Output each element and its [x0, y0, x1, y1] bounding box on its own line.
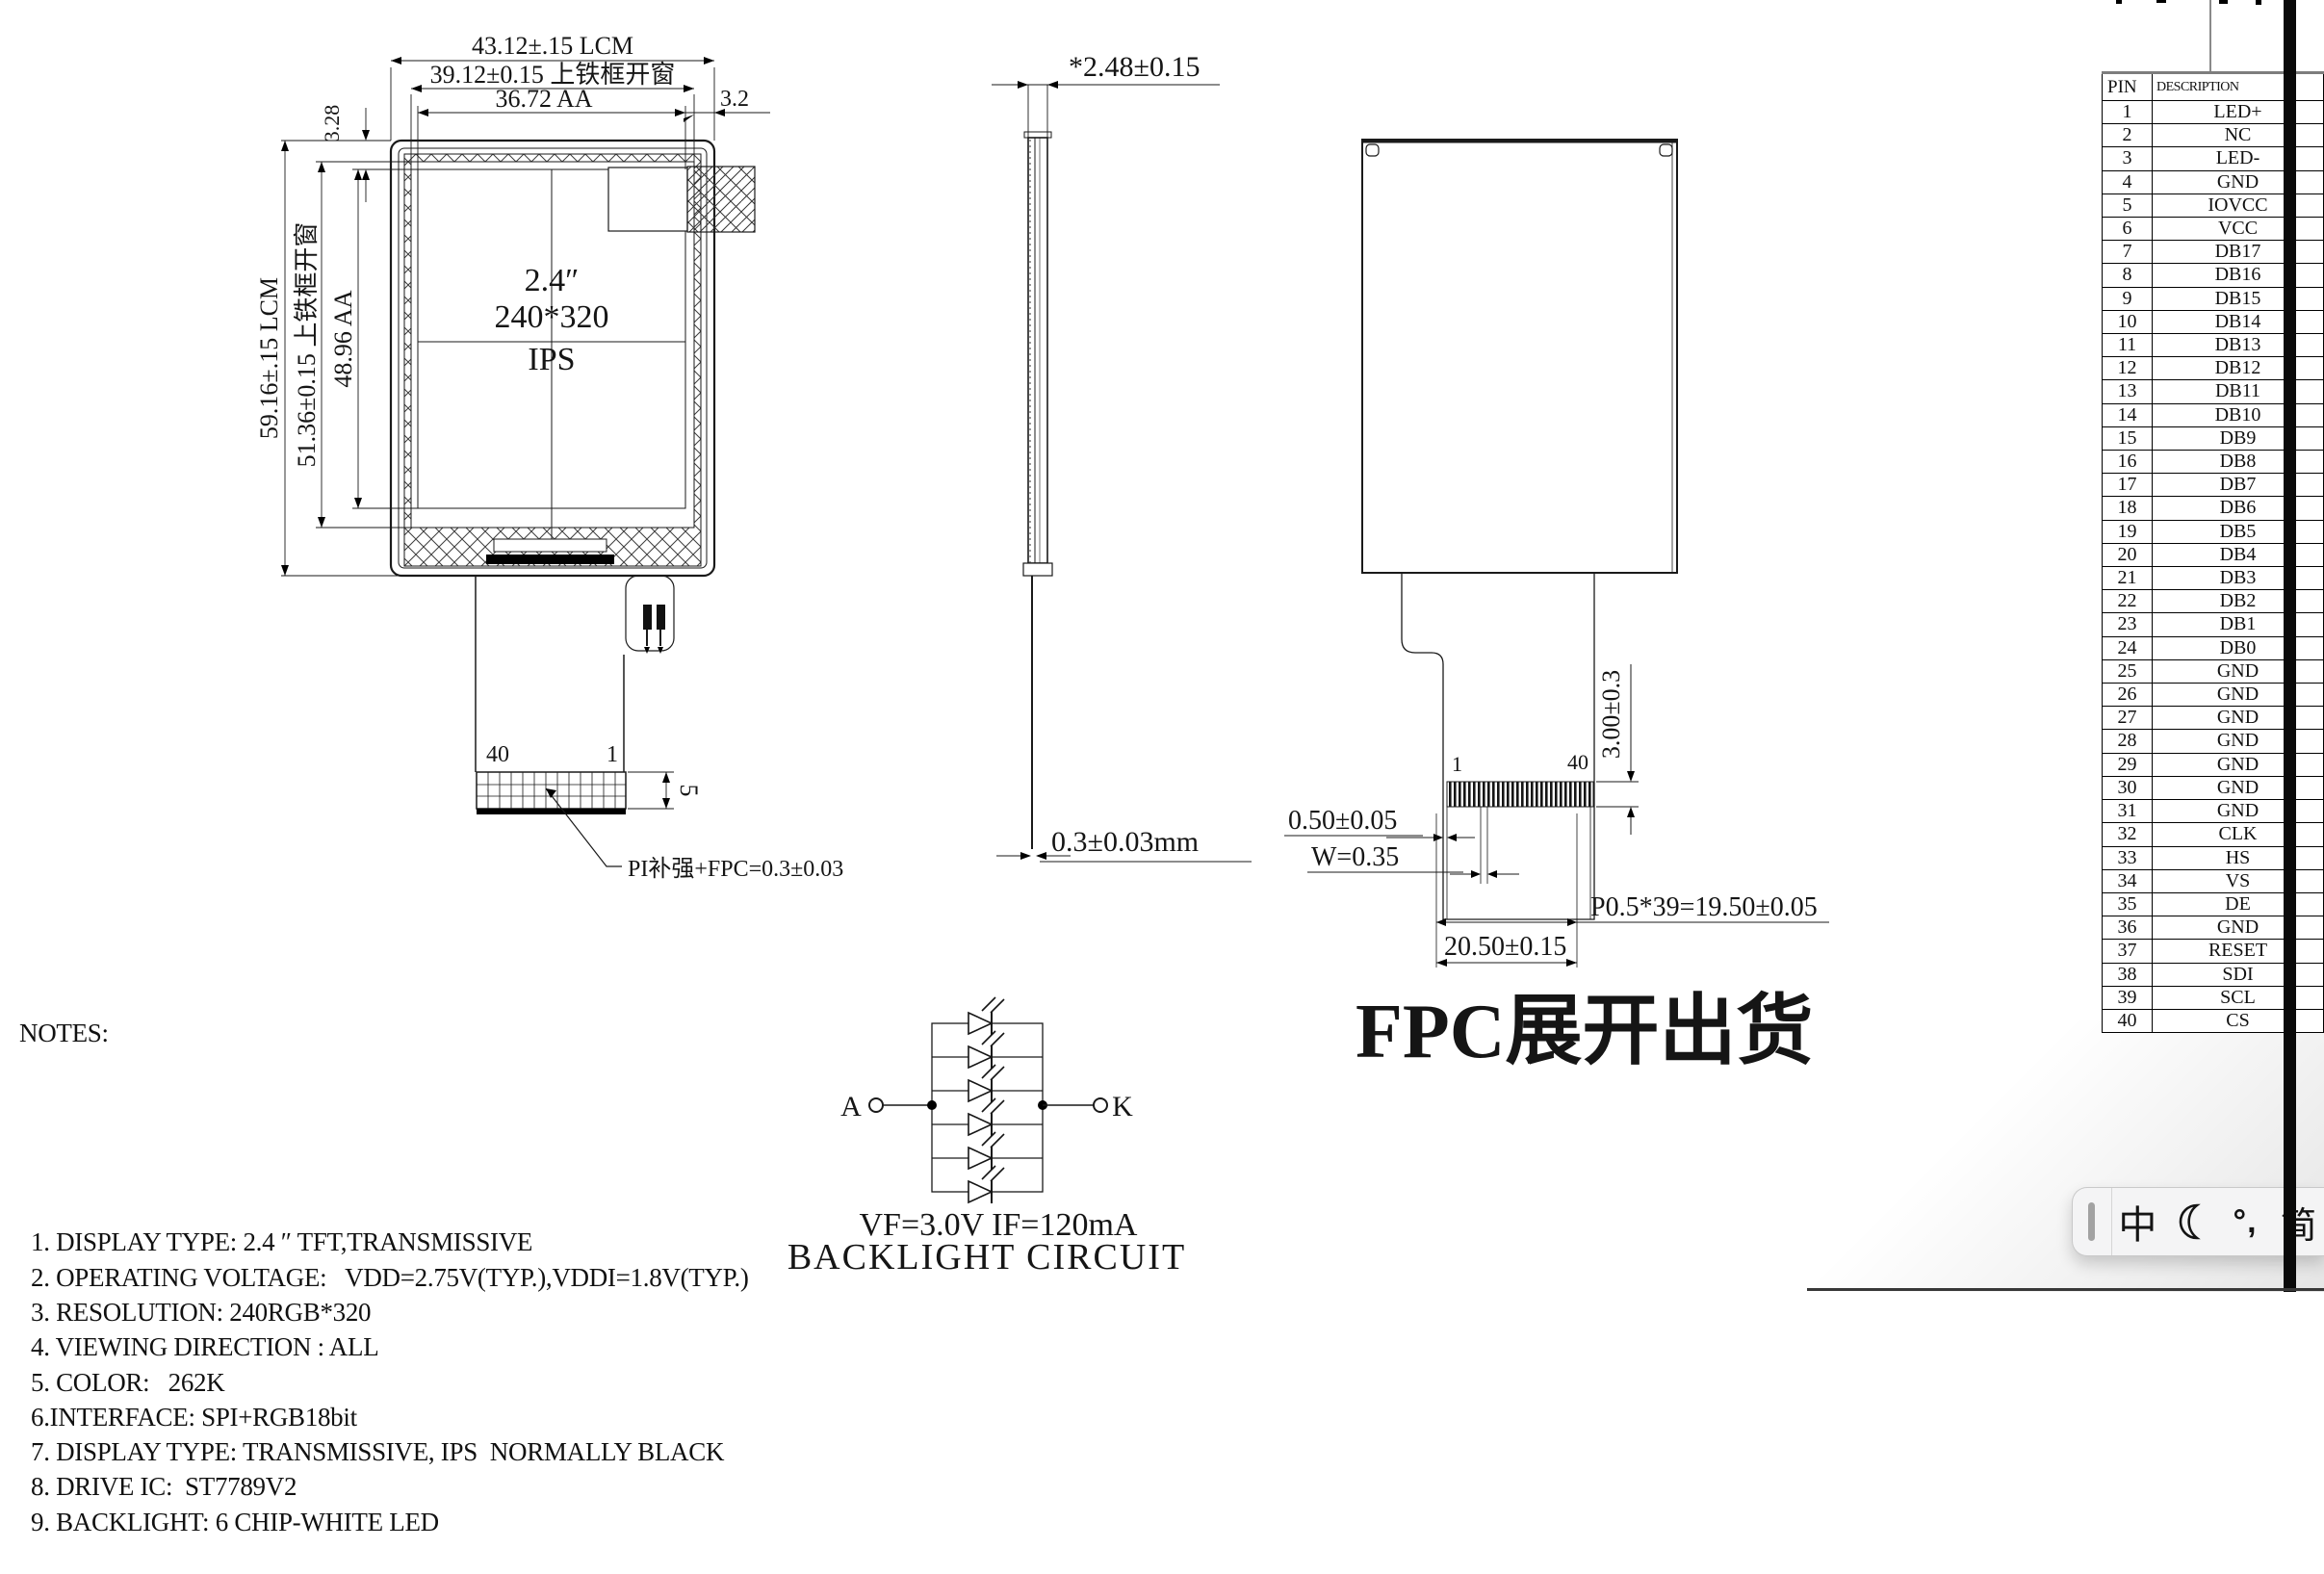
pin-description: HS [2153, 846, 2324, 869]
pin-number: 18 [2103, 497, 2153, 520]
pin-number: 10 [2103, 310, 2153, 333]
pin-description: RESET [2153, 940, 2324, 963]
pin-number: 17 [2103, 474, 2153, 497]
dim-pad-pitch: P0.5*39=19.50±0.05 [1590, 892, 1818, 922]
top-edge-tick [2156, 0, 2166, 3]
backlight-caption: BACKLIGHT CIRCUIT [788, 1237, 1186, 1277]
corner-tab-right [1660, 144, 1672, 156]
pin-number: 25 [2103, 659, 2153, 683]
note-line: 5. COLOR: 262K [19, 1365, 828, 1400]
pin-number: 24 [2103, 636, 2153, 659]
pin-number: 11 [2103, 334, 2153, 357]
dim-pad-width: W=0.35 [1311, 842, 1399, 872]
pin-column-header: PIN [2103, 73, 2153, 101]
backlight-circuit [869, 997, 1107, 1203]
window-edge-bar [2284, 0, 2296, 1292]
pin-description: DB2 [2153, 590, 2324, 613]
note-line: 3. RESOLUTION: 240RGB*320 [19, 1295, 828, 1329]
pin-number: 16 [2103, 451, 2153, 474]
note-line: 7. DISPLAY TYPE: TRANSMISSIVE, IPS NORMA… [19, 1434, 828, 1469]
panel-resolution-label: 240*320 [495, 299, 609, 335]
pin-description: DB14 [2153, 310, 2324, 333]
pin-description: DB13 [2153, 334, 2324, 357]
pin-description: GND [2153, 659, 2324, 683]
pin-number: 21 [2103, 567, 2153, 590]
pin-description: DB17 [2153, 241, 2324, 264]
front-pin1-label: 1 [607, 742, 618, 767]
ime-drag-handle[interactable] [2073, 1188, 2112, 1255]
ime-chinese-mode-button[interactable]: 中 [2112, 1194, 2163, 1250]
driver-ic-bar [486, 555, 614, 564]
pin-number: 39 [2103, 986, 2153, 1009]
description-column-header: DESCRIPTION [2153, 73, 2324, 101]
pin-description: CLK [2153, 823, 2324, 846]
panel-size-label: 2.4″ [525, 263, 580, 298]
front-pin40-label: 40 [486, 742, 509, 767]
dim-stiffener-height: 3.00±0.3 [1597, 670, 1625, 759]
ime-handle-pill [2088, 1202, 2095, 1241]
pin-description: GND [2153, 916, 2324, 940]
pin-number: 23 [2103, 613, 2153, 636]
note-line: 4. VIEWING DIRECTION : ALL [19, 1329, 828, 1364]
pin-number: 2 [2103, 124, 2153, 147]
cathode-label: K [1112, 1091, 1133, 1122]
panel-type-label: IPS [528, 342, 575, 377]
side-tape-hatch [687, 167, 755, 232]
pin-number: 19 [2103, 520, 2153, 543]
dim-width-lcm: 43.12±.15 LCM [472, 32, 633, 60]
pin-number: 22 [2103, 590, 2153, 613]
ime-punctuation-button[interactable]: °, [2218, 1203, 2271, 1241]
cathode-terminal [1094, 1098, 1107, 1112]
dim-width-aa: 36.72 AA [495, 85, 592, 113]
ime-halfwidth-moon-button[interactable] [2163, 1200, 2218, 1243]
notes-title: NOTES: [19, 1016, 828, 1050]
side-view [992, 81, 1252, 862]
pin-description: DB7 [2153, 474, 2324, 497]
anode-terminal [869, 1098, 883, 1112]
pin-description: GND [2153, 753, 2324, 776]
dim-gap-right: 3.2 [720, 87, 749, 112]
notes-block: NOTES: 1. DISPLAY TYPE: 2.4 ″ TFT,TRANSM… [19, 945, 828, 1574]
pin-number: 14 [2103, 403, 2153, 426]
pin-description: DB15 [2153, 287, 2324, 310]
note-line: 1. DISPLAY TYPE: 2.4 ″ TFT,TRANSMISSIVE [19, 1225, 828, 1259]
pin-description: SCL [2153, 986, 2324, 1009]
dim-fpc-width: 20.50±0.15 [1444, 932, 1566, 962]
pin-description: IOVCC [2153, 194, 2324, 217]
pin-description: DB8 [2153, 451, 2324, 474]
dim-pad-offset: 0.50±0.05 [1288, 806, 1397, 836]
pin-description: VCC [2153, 218, 2324, 241]
top-edge-tick [2219, 0, 2228, 4]
pin-description: GND [2153, 776, 2324, 799]
pin-number: 38 [2103, 963, 2153, 986]
back-pin1-label: 1 [1452, 752, 1462, 776]
pin-description: LED- [2153, 147, 2324, 170]
dim-gap-top: 3.28 [320, 105, 344, 142]
pin-number: 33 [2103, 846, 2153, 869]
top-edge-tick [2256, 0, 2261, 5]
pin-number: 7 [2103, 241, 2153, 264]
dim-thickness: *2.48±0.15 [1069, 51, 1200, 83]
pin-number: 1 [2103, 101, 2153, 124]
pin-number: 32 [2103, 823, 2153, 846]
pin-number: 3 [2103, 147, 2153, 170]
pin-number: 28 [2103, 730, 2153, 753]
sheet-border-line [1807, 1288, 2324, 1291]
ic-window [608, 168, 687, 231]
crescent-moon-icon [2170, 1200, 2212, 1243]
dim-height-lcm: 59.16±.15 LCM [255, 277, 283, 439]
pin-description: DE [2153, 892, 2324, 916]
pin-description: GND [2153, 684, 2324, 707]
pin-description: GND [2153, 800, 2324, 823]
pin-description: DB11 [2153, 380, 2324, 403]
pin-description: GND [2153, 170, 2324, 194]
pin-description: SDI [2153, 963, 2324, 986]
top-edge-tick [2116, 0, 2122, 4]
front-view [391, 141, 755, 814]
pin-number: 30 [2103, 776, 2153, 799]
pin-number: 27 [2103, 707, 2153, 730]
pin-description: DB3 [2153, 567, 2324, 590]
ime-simplified-button[interactable]: 简 [2272, 1196, 2324, 1249]
pin-description: CS [2153, 1009, 2324, 1032]
pin-number: 40 [2103, 1009, 2153, 1032]
dim-connector-height: 5 [675, 785, 703, 797]
pin-description: DB1 [2153, 613, 2324, 636]
back-connector-pads [1447, 782, 1593, 807]
pin-number: 26 [2103, 684, 2153, 707]
dim-height-window: 51.36±0.15 上铁框开窗 [293, 222, 321, 468]
note-line: 6.INTERFACE: SPI+RGB18bit [19, 1400, 828, 1434]
pin-number: 12 [2103, 357, 2153, 380]
pin-number: 13 [2103, 380, 2153, 403]
pin-description: VS [2153, 869, 2324, 892]
note-line: 8. DRIVE IC: ST7789V2 [19, 1469, 828, 1504]
pin-number: 8 [2103, 264, 2153, 287]
back-pin40-label: 40 [1567, 750, 1588, 774]
pin-number: 31 [2103, 800, 2153, 823]
pin-description: DB10 [2153, 403, 2324, 426]
pin-description: GND [2153, 707, 2324, 730]
anode-label: A [840, 1091, 862, 1122]
fpc-leader-note: PI补强+FPC=0.3±0.03 [628, 856, 843, 882]
pin-number: 15 [2103, 426, 2153, 450]
frame-remnant-line [2209, 0, 2211, 71]
pin-number: 4 [2103, 170, 2153, 194]
pin-number: 37 [2103, 940, 2153, 963]
pin-number: 20 [2103, 543, 2153, 566]
dim-fpc-thickness: 0.3±0.03mm [1051, 826, 1199, 858]
pin-number: 35 [2103, 892, 2153, 916]
pin-description: LED+ [2153, 101, 2324, 124]
pin-description: DB16 [2153, 264, 2324, 287]
pin-description: DB0 [2153, 636, 2324, 659]
pin-description: DB12 [2153, 357, 2324, 380]
pin-description: DB4 [2153, 543, 2324, 566]
pin-number: 9 [2103, 287, 2153, 310]
pin-description: DB9 [2153, 426, 2324, 450]
note-line: 2. OPERATING VOLTAGE: VDD=2.75V(TYP.),VD… [19, 1260, 828, 1295]
corner-tab-left [1366, 144, 1379, 156]
note-line: 9. BACKLIGHT: 6 CHIP-WHITE LED [19, 1505, 828, 1539]
pin-number: 6 [2103, 218, 2153, 241]
pin-description: NC [2153, 124, 2324, 147]
dim-height-aa: 48.96 AA [329, 290, 357, 387]
pin-number: 34 [2103, 869, 2153, 892]
pin-description: DB5 [2153, 520, 2324, 543]
pin-description: DB6 [2153, 497, 2324, 520]
fpc-shipping-caption: FPC展开出货 [1356, 990, 1814, 1074]
pin-description: GND [2153, 730, 2324, 753]
pin-number: 29 [2103, 753, 2153, 776]
pin-number: 36 [2103, 916, 2153, 940]
pin-number: 5 [2103, 194, 2153, 217]
